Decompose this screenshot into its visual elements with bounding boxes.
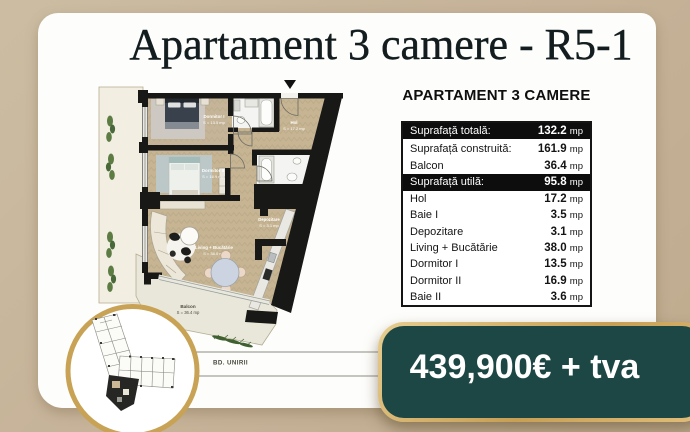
svg-text:S = 36.4 mp: S = 36.4 mp [177, 310, 200, 315]
svg-text:S = 3.1 mp: S = 3.1 mp [259, 223, 279, 228]
svg-text:Living + Bucătărie: Living + Bucătărie [195, 245, 234, 250]
svg-text:Balcon: Balcon [180, 304, 196, 309]
svg-text:Dormitor I: Dormitor I [204, 114, 225, 119]
svg-text:BD. UNIRII: BD. UNIRII [213, 360, 248, 367]
svg-text:Dormitor II: Dormitor II [202, 168, 224, 173]
svg-text:Hol: Hol [290, 120, 297, 125]
svg-text:S = 16.9 mp: S = 16.9 mp [202, 174, 224, 179]
svg-text:Depozitare: Depozitare [258, 217, 280, 222]
svg-text:S = 13.5 mp: S = 13.5 mp [203, 120, 225, 125]
svg-text:S = 17.2 mp: S = 17.2 mp [283, 126, 305, 131]
